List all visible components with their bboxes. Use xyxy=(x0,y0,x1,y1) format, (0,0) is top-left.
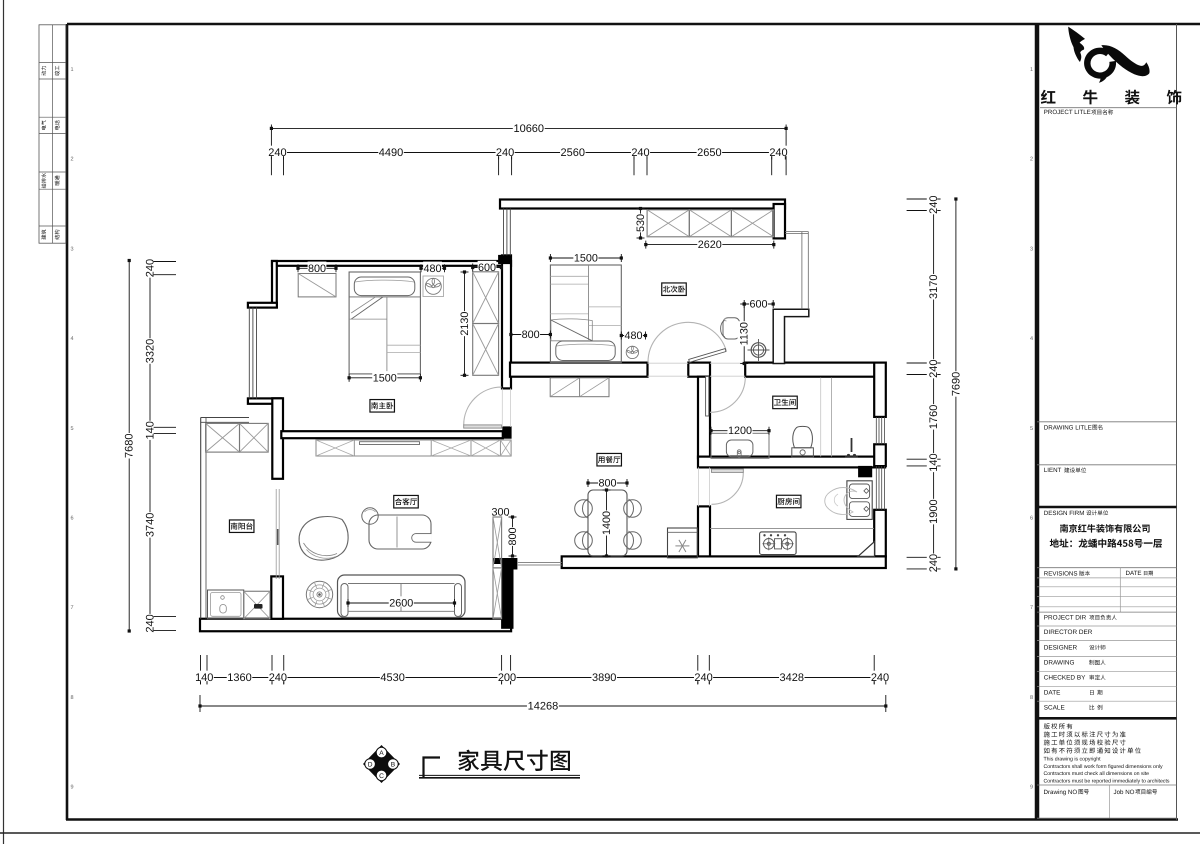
svg-text:DESIGNER: DESIGNER xyxy=(1044,645,1078,652)
svg-text:2130: 2130 xyxy=(459,312,471,336)
svg-text:This drawing is copyright: This drawing is copyright xyxy=(1044,756,1102,762)
svg-text:7690: 7690 xyxy=(950,372,962,396)
svg-text:1360: 1360 xyxy=(227,672,251,684)
svg-text:9: 9 xyxy=(71,785,74,791)
svg-text:8: 8 xyxy=(1030,695,1033,701)
svg-text:DRAWING: DRAWING xyxy=(1044,660,1075,667)
svg-text:5: 5 xyxy=(71,426,74,432)
svg-text:4530: 4530 xyxy=(380,672,404,684)
svg-text:7: 7 xyxy=(1030,605,1033,611)
svg-text:Drawing NO: Drawing NO xyxy=(1044,789,1078,796)
svg-text:530: 530 xyxy=(635,214,647,232)
svg-text:1500: 1500 xyxy=(574,252,598,264)
svg-text:3428: 3428 xyxy=(780,672,804,684)
svg-text:2560: 2560 xyxy=(561,147,585,159)
svg-text:A: A xyxy=(379,750,384,757)
svg-text:800: 800 xyxy=(308,263,326,275)
svg-text:6: 6 xyxy=(71,516,74,522)
svg-text:240: 240 xyxy=(268,147,286,159)
svg-text:SCALE: SCALE xyxy=(1044,705,1065,712)
svg-text:PROJECT DIR: PROJECT DIR xyxy=(1044,615,1087,622)
svg-text:800: 800 xyxy=(507,527,519,545)
svg-text:PROJECT LITLE: PROJECT LITLE xyxy=(1044,109,1091,116)
svg-text:Contractors shall work form fi: Contractors shall work form figured dime… xyxy=(1044,764,1163,770)
svg-text:D: D xyxy=(368,761,373,768)
svg-text:1400: 1400 xyxy=(601,511,613,535)
svg-text:480: 480 xyxy=(624,330,642,342)
svg-text:DESIGN FIRM: DESIGN FIRM xyxy=(1044,510,1085,517)
svg-text:240: 240 xyxy=(769,147,787,159)
svg-text:240: 240 xyxy=(269,672,287,684)
svg-text:1760: 1760 xyxy=(928,405,940,429)
svg-text:LIENT: LIENT xyxy=(1044,467,1062,474)
svg-text:C: C xyxy=(379,773,384,780)
svg-text:5: 5 xyxy=(1030,426,1033,432)
svg-text:2620: 2620 xyxy=(698,239,722,251)
svg-text:7: 7 xyxy=(71,605,74,611)
svg-text:2: 2 xyxy=(71,157,74,163)
svg-text:3320: 3320 xyxy=(145,339,157,363)
svg-text:3: 3 xyxy=(1030,246,1033,252)
svg-text:140: 140 xyxy=(145,421,157,439)
svg-text:3740: 3740 xyxy=(145,513,157,537)
svg-text:1500: 1500 xyxy=(373,372,397,384)
svg-text:300: 300 xyxy=(491,506,509,518)
svg-text:DRAWING LITLE: DRAWING LITLE xyxy=(1044,424,1092,431)
svg-text:CHECKED BY: CHECKED BY xyxy=(1044,675,1086,682)
svg-text:7680: 7680 xyxy=(124,434,136,458)
svg-text:Contractors must check all dim: Contractors must check all dimensions on… xyxy=(1044,771,1150,777)
svg-text:1200: 1200 xyxy=(728,425,752,437)
svg-text:10660: 10660 xyxy=(513,123,544,135)
svg-text:240: 240 xyxy=(631,147,649,159)
svg-text:Contractors must be reported i: Contractors must be reported immediately… xyxy=(1044,779,1170,785)
svg-text:3: 3 xyxy=(71,246,74,252)
svg-text:240: 240 xyxy=(871,672,889,684)
svg-text:9: 9 xyxy=(1030,785,1033,791)
svg-text:140: 140 xyxy=(928,453,940,471)
svg-text:3170: 3170 xyxy=(928,275,940,299)
svg-text:Job NO: Job NO xyxy=(1114,789,1135,796)
svg-text:140: 140 xyxy=(195,672,213,684)
svg-text:1900: 1900 xyxy=(928,499,940,523)
svg-text:240: 240 xyxy=(145,259,157,277)
svg-text:REVISIONS: REVISIONS xyxy=(1044,570,1078,577)
svg-text:800: 800 xyxy=(522,329,540,341)
svg-text:240: 240 xyxy=(694,672,712,684)
svg-text:1130: 1130 xyxy=(739,322,751,345)
svg-text:2: 2 xyxy=(1030,157,1033,163)
svg-text:B: B xyxy=(391,761,396,768)
svg-text:DATE: DATE xyxy=(1126,570,1142,577)
svg-text:240: 240 xyxy=(496,147,514,159)
svg-text:600: 600 xyxy=(749,298,767,310)
svg-text:4: 4 xyxy=(71,336,74,342)
svg-text:DIRECTOR DER: DIRECTOR DER xyxy=(1044,629,1093,636)
svg-text:DATE: DATE xyxy=(1044,690,1061,697)
svg-text:8: 8 xyxy=(71,695,74,701)
svg-text:240: 240 xyxy=(928,360,940,378)
svg-text:600: 600 xyxy=(478,262,496,274)
svg-text:14268: 14268 xyxy=(528,701,559,713)
svg-text:4490: 4490 xyxy=(379,147,403,159)
svg-text:800: 800 xyxy=(598,477,616,489)
svg-text:480: 480 xyxy=(423,263,441,275)
svg-text:6: 6 xyxy=(1030,516,1033,522)
svg-text:4: 4 xyxy=(1030,336,1033,342)
svg-text:240: 240 xyxy=(145,614,157,632)
svg-text:200: 200 xyxy=(498,672,516,684)
svg-text:2650: 2650 xyxy=(697,147,721,159)
svg-text:1: 1 xyxy=(71,67,74,73)
svg-text:1: 1 xyxy=(1030,67,1033,73)
svg-text:3890: 3890 xyxy=(592,672,616,684)
svg-text:240: 240 xyxy=(928,554,940,572)
svg-text:2600: 2600 xyxy=(389,597,413,609)
svg-text:240: 240 xyxy=(928,196,940,214)
